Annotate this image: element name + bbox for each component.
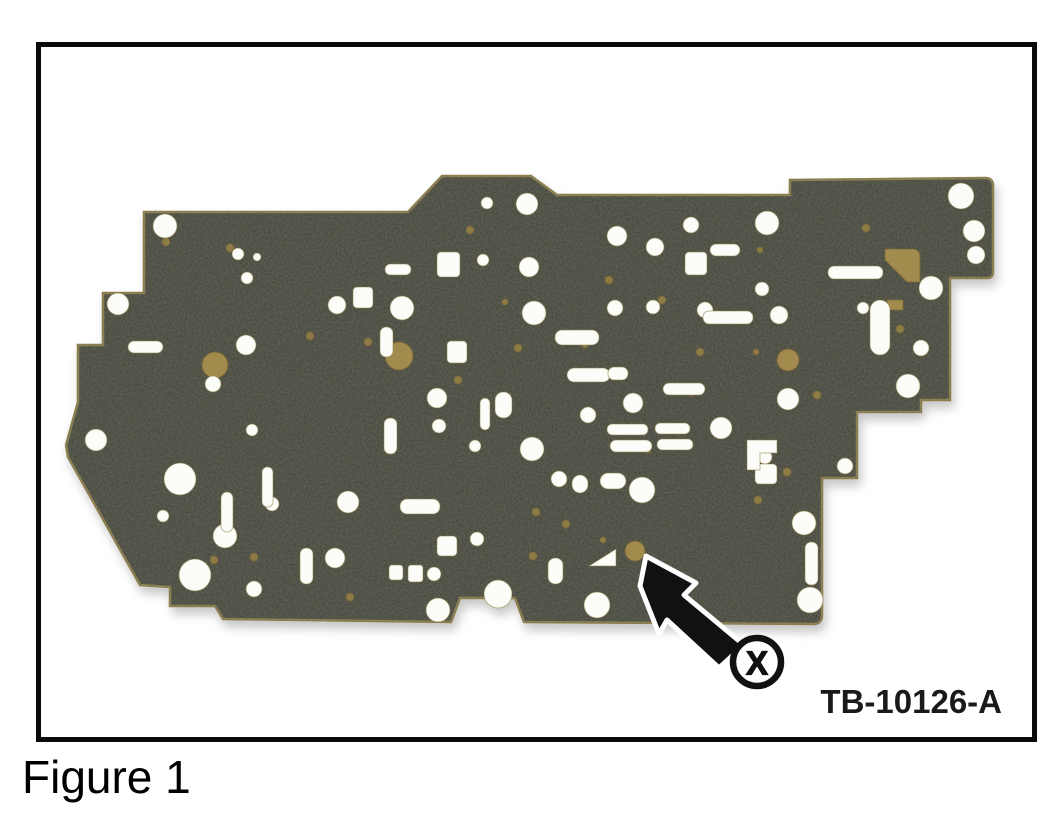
figure-caption: Figure 1 — [22, 750, 191, 804]
through-hole — [205, 376, 221, 392]
gold-rivet-dot — [364, 338, 372, 346]
slot-hole — [385, 264, 411, 275]
figure-frame: X TB-10126-A — [36, 42, 1037, 742]
gold-orifice — [625, 541, 645, 561]
through-hole — [426, 598, 450, 622]
through-hole — [337, 491, 359, 513]
gold-rivet-dot — [783, 468, 791, 476]
gold-rivet-dot — [346, 593, 354, 601]
gold-rivet-dot — [896, 325, 904, 333]
gold-orifice — [777, 349, 799, 371]
through-hole — [469, 440, 481, 452]
through-hole — [755, 282, 769, 296]
through-hole — [236, 335, 256, 355]
through-hole — [241, 272, 253, 284]
gold-rivet-dot — [532, 508, 540, 516]
slot-hole — [495, 392, 512, 418]
square-hole — [685, 252, 707, 275]
slot-hole — [384, 418, 397, 454]
gold-rivet-dot — [862, 224, 870, 232]
gold-rivet-dot — [514, 344, 522, 352]
through-hole — [522, 301, 546, 325]
through-hole — [792, 511, 816, 535]
slot-hole — [870, 300, 890, 355]
gold-rivet-dot — [757, 247, 763, 253]
gold-rivet-dot — [696, 348, 704, 356]
plate-group — [66, 176, 993, 624]
slot-hole — [380, 327, 393, 357]
gold-rivet-dot — [502, 299, 508, 305]
gold-rivet-dot — [454, 376, 462, 384]
slot-hole — [828, 266, 883, 279]
slot-hole — [710, 244, 740, 256]
gold-rivet-dot — [210, 556, 218, 564]
slot-hole — [608, 367, 628, 380]
through-hole — [481, 197, 493, 209]
through-hole — [107, 293, 129, 315]
through-hole — [432, 419, 446, 433]
through-hole — [607, 226, 627, 246]
square-hole — [353, 287, 373, 308]
through-hole — [629, 477, 655, 503]
slot-hole — [600, 473, 626, 489]
through-hole — [770, 306, 788, 324]
through-hole — [683, 217, 699, 233]
gold-rivet-dot — [813, 391, 821, 399]
through-hole — [777, 388, 799, 410]
through-hole — [896, 374, 920, 398]
through-hole — [470, 532, 484, 546]
through-hole — [85, 429, 107, 451]
gold-rivet-dot — [529, 552, 537, 560]
square-hole — [437, 536, 457, 556]
through-hole — [157, 510, 169, 522]
slot-hole — [607, 424, 648, 435]
gold-rivet-dot — [562, 520, 570, 528]
through-hole — [837, 458, 853, 474]
through-hole — [390, 296, 414, 320]
slot-hole — [300, 548, 313, 584]
through-hole — [519, 257, 539, 277]
through-hole — [427, 388, 447, 408]
through-hole — [710, 417, 732, 439]
gold-rivet-dot — [466, 226, 474, 234]
through-hole — [580, 407, 596, 423]
through-hole — [607, 300, 623, 316]
slot-hole — [703, 311, 753, 324]
through-hole — [179, 559, 211, 591]
slot-hole — [572, 475, 588, 493]
through-hole — [328, 296, 346, 314]
gold-rivet-dot — [306, 332, 314, 340]
through-hole — [755, 211, 779, 235]
through-hole — [919, 276, 943, 300]
through-hole — [516, 193, 538, 215]
slot-hole — [663, 383, 705, 395]
gold-rivet-dot — [754, 496, 762, 504]
through-hole — [963, 220, 985, 242]
through-hole — [164, 463, 196, 495]
through-hole — [948, 183, 974, 209]
through-hole — [584, 592, 610, 618]
through-hole — [246, 581, 262, 597]
square-hole — [408, 565, 423, 582]
slot-hole — [128, 341, 163, 353]
square-hole — [447, 341, 467, 363]
gold-rivet-dot — [753, 349, 759, 355]
through-hole — [153, 214, 177, 238]
through-hole — [857, 302, 869, 314]
through-hole — [797, 587, 823, 613]
slot-hole — [480, 398, 490, 430]
through-hole — [623, 393, 643, 413]
valve-body-spacer-plate-photo: X — [41, 47, 1032, 737]
through-hole — [427, 567, 441, 581]
slot-hole — [262, 467, 273, 507]
through-hole — [646, 300, 660, 314]
slot-hole — [400, 499, 440, 514]
through-hole — [913, 340, 929, 356]
slot-hole — [805, 542, 818, 585]
slot-hole — [655, 423, 690, 434]
callout-x-label: X — [746, 645, 768, 682]
through-hole — [646, 238, 664, 256]
square-hole — [437, 252, 460, 277]
through-hole — [253, 253, 261, 261]
slot-hole — [610, 440, 652, 452]
through-hole — [232, 248, 244, 260]
through-hole — [967, 246, 985, 264]
slot-hole — [221, 492, 233, 532]
gold-rivet-dot — [605, 276, 613, 284]
gold-rivet-dot — [162, 238, 170, 246]
through-hole — [477, 254, 489, 266]
through-hole — [551, 471, 567, 487]
through-hole — [484, 580, 512, 608]
slot-hole — [567, 368, 610, 382]
slot-hole — [548, 558, 563, 584]
through-hole — [246, 424, 258, 436]
slot-hole — [657, 439, 693, 450]
slot-hole — [555, 330, 599, 345]
through-hole — [520, 437, 544, 461]
gold-rivet-dot — [600, 537, 606, 543]
gold-rivet-dot — [250, 553, 258, 561]
figure-reference-number: TB-10126-A — [820, 683, 1002, 721]
through-hole — [325, 548, 345, 568]
gold-orifice — [202, 352, 228, 378]
square-hole — [389, 565, 403, 580]
